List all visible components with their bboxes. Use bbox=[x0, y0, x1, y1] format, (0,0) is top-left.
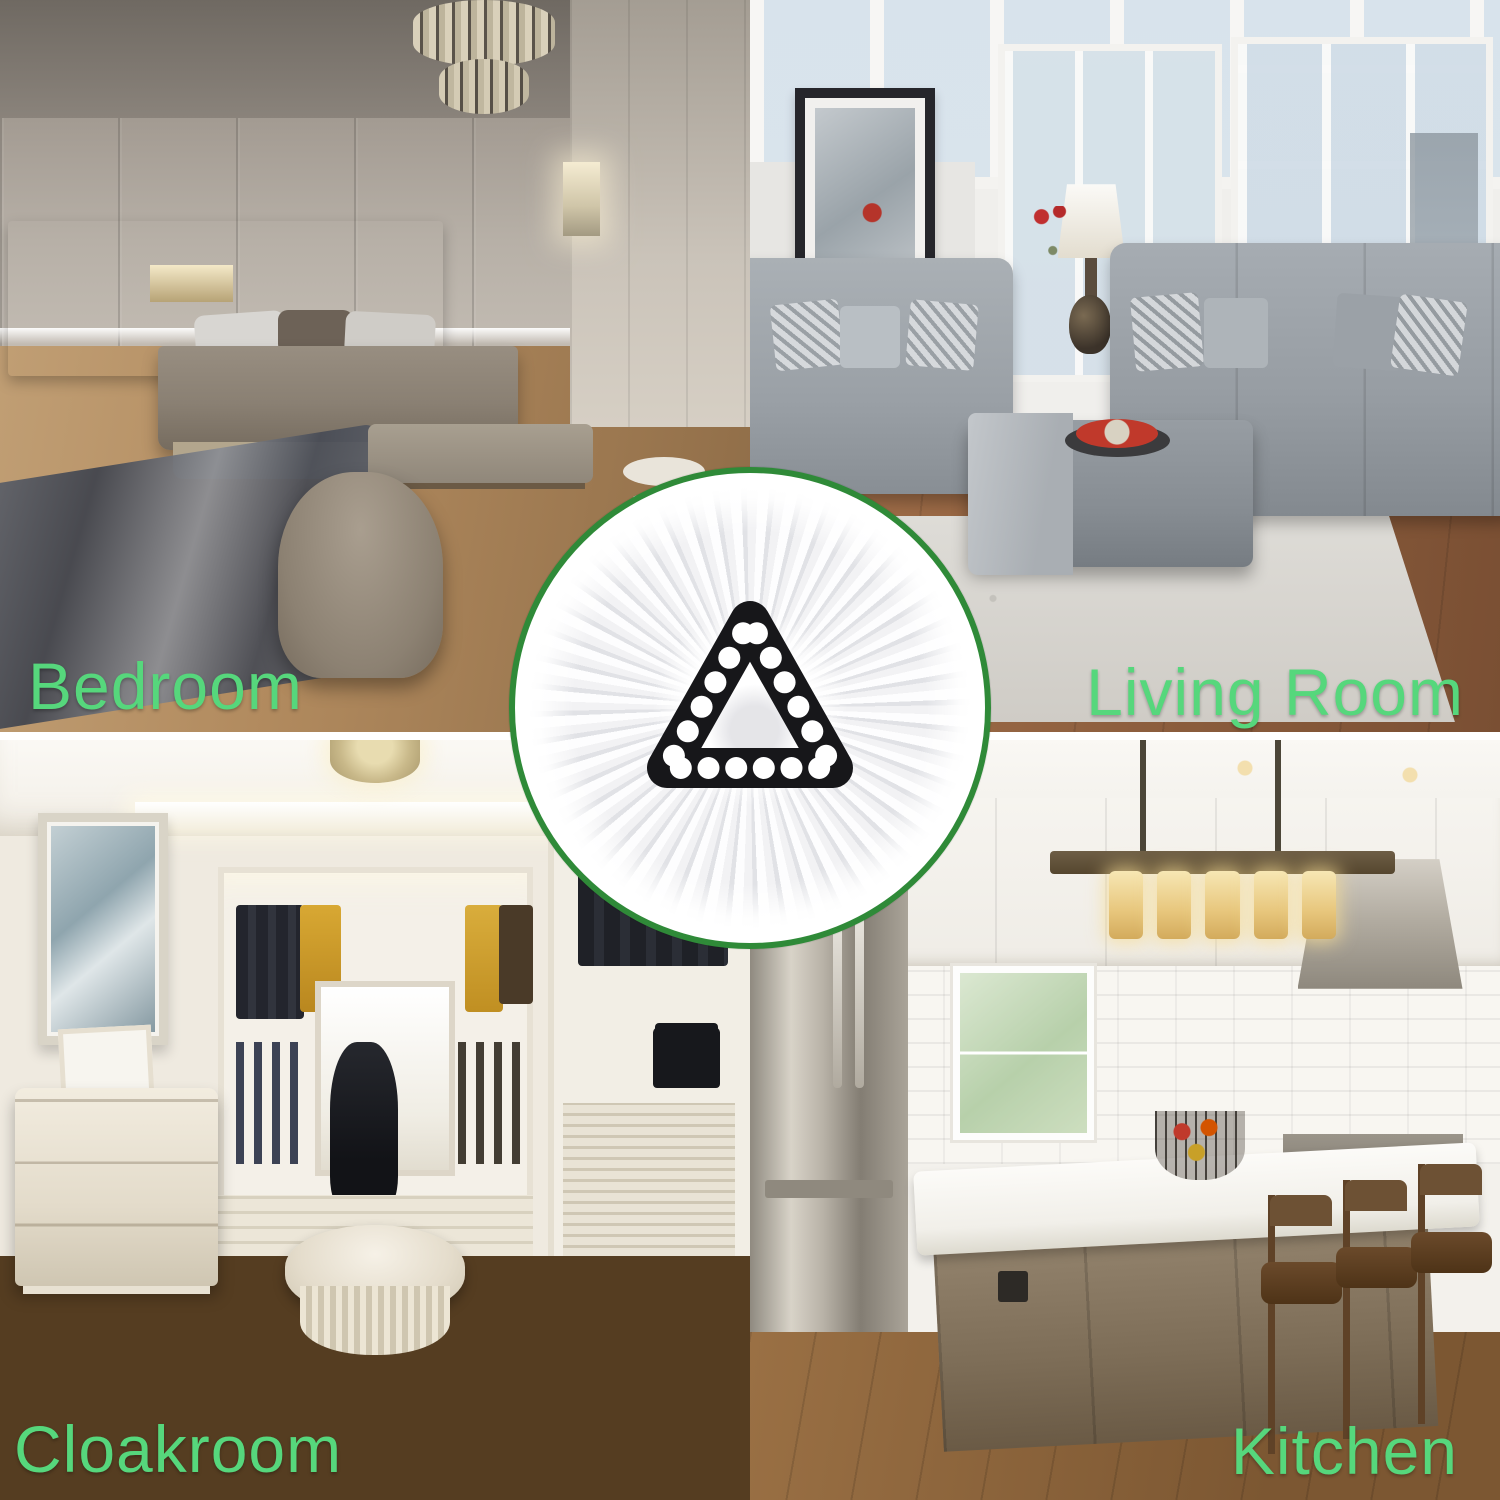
cloakroom-hanging-row bbox=[236, 1042, 304, 1164]
kitchen-bar-stool bbox=[1343, 1180, 1411, 1439]
cloakroom-bag bbox=[653, 1027, 721, 1088]
kitchen-chandelier-rod bbox=[1140, 737, 1146, 859]
bedroom-chandelier-tier bbox=[439, 59, 529, 114]
kitchen-label: Kitchen bbox=[1231, 1417, 1458, 1486]
kitchen-bar-stool bbox=[1418, 1164, 1486, 1423]
cloakroom-ottoman-skirt bbox=[300, 1286, 450, 1355]
bedroom-chandelier-icon bbox=[413, 0, 556, 66]
bedroom-wall-sconce bbox=[563, 162, 601, 236]
living-room-red-bowl bbox=[1076, 419, 1159, 448]
kitchen-window bbox=[953, 966, 1095, 1140]
stool-seat bbox=[1411, 1232, 1492, 1274]
cloakroom-painting bbox=[38, 813, 169, 1045]
kitchen-island-outlet bbox=[998, 1271, 1028, 1302]
cloakroom-chandelier-icon bbox=[330, 737, 420, 783]
living-room-vase bbox=[1069, 295, 1111, 354]
living-room-label: Living Room bbox=[1086, 658, 1464, 727]
living-room-pillow bbox=[1129, 292, 1203, 371]
living-room-roses bbox=[1028, 206, 1073, 294]
cloakroom-desk-chair bbox=[330, 1042, 398, 1210]
stool-back bbox=[1420, 1164, 1482, 1195]
product-badge-circle bbox=[509, 467, 991, 949]
kitchen-glass-shade bbox=[1254, 871, 1289, 940]
kitchen-chandelier-icon bbox=[1050, 871, 1395, 940]
bedroom-armchair bbox=[278, 472, 443, 678]
living-room-pillow bbox=[905, 299, 978, 371]
bedroom-label: Bedroom bbox=[28, 652, 303, 721]
kitchen-glass-shade bbox=[1157, 871, 1192, 940]
kitchen-glass-shade bbox=[1205, 871, 1240, 940]
room-collage: Bedroom Living Room bbox=[0, 0, 1500, 1500]
bedroom-headboard-niche bbox=[150, 265, 233, 302]
cloakroom-hanging-row bbox=[458, 1042, 526, 1164]
stool-seat bbox=[1336, 1247, 1417, 1289]
cloakroom-dresser bbox=[15, 1088, 218, 1286]
cloakroom-label: Cloakroom bbox=[14, 1415, 342, 1484]
stool-back bbox=[1345, 1180, 1407, 1211]
cloakroom-yellow-coat bbox=[465, 905, 503, 1012]
cloakroom-louver-drawers bbox=[563, 1103, 736, 1256]
living-room-pillow bbox=[1390, 294, 1467, 376]
kitchen-glass-shade bbox=[1109, 871, 1144, 940]
living-room-pillow bbox=[769, 299, 843, 372]
kitchen-fruit-basket bbox=[1155, 1111, 1245, 1180]
mop-triangle-connector-icon bbox=[515, 473, 985, 943]
kitchen-glass-shade bbox=[1302, 871, 1337, 940]
living-room-pillow bbox=[840, 306, 900, 369]
kitchen-chandelier-rod bbox=[1275, 737, 1281, 859]
stool-seat bbox=[1261, 1262, 1342, 1304]
kitchen-freezer-drawer bbox=[765, 1180, 893, 1198]
living-room-pillow bbox=[1204, 298, 1268, 368]
cloakroom-coats bbox=[236, 905, 304, 1019]
stool-back bbox=[1270, 1195, 1332, 1226]
